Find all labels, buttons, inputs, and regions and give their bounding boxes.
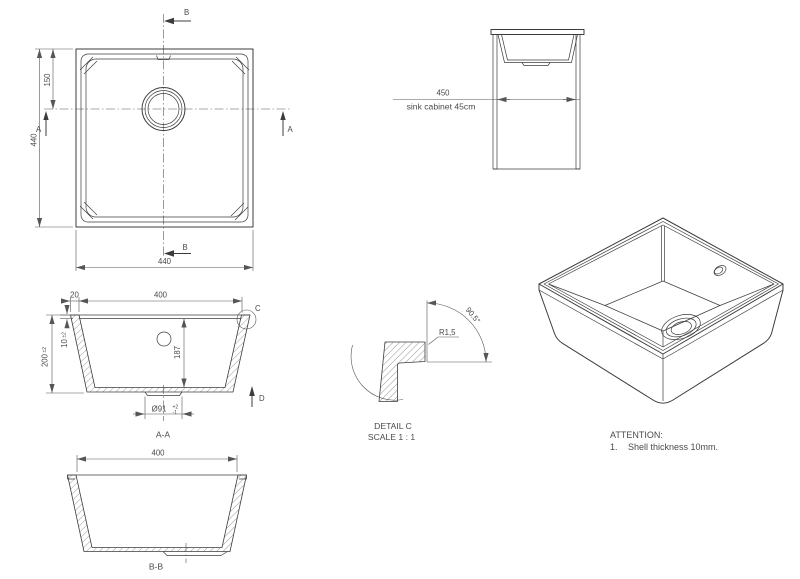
plan-dim-drain-offset-text: 150	[43, 73, 52, 87]
plan-view: 440 150 440 B B A	[30, 8, 294, 271]
plan-rim-inner-edge	[81, 54, 248, 222]
section-aa-overflow-hole	[157, 332, 171, 346]
section-aa-dim-thickness-text: 10±2	[60, 332, 69, 348]
section-bb-shell	[68, 475, 247, 552]
section-bb-rim-ears	[68, 475, 247, 479]
plan-dim-drain-offset: 150	[43, 49, 53, 109]
detail-c-marker-label: C	[255, 304, 261, 313]
detail-c-wall-section	[379, 342, 425, 402]
cabinet-countertop	[491, 30, 584, 35]
section-aa-title: A-A	[156, 430, 171, 440]
iso-rim-outer	[539, 218, 783, 354]
section-marker-b-top-label: B	[184, 8, 189, 17]
section-bb-drain-recess	[163, 552, 228, 556]
section-aa-view: 20 400 200±2 10±2 187	[41, 291, 266, 440]
cabinet-side-view: 450 sink cabinet 45cm	[393, 30, 584, 170]
plan-dim-overall-width: 440	[76, 230, 253, 271]
section-bb-dim-inner-width: 400	[77, 449, 237, 473]
section-aa-dim-drain-tol-lower: -1	[173, 410, 178, 416]
section-aa-dim-inner-width: 400	[79, 291, 242, 313]
attention-note: ATTENTION: 1. Shell thickness 10mm.	[610, 430, 718, 452]
cabinet-dim-width-text: 450	[436, 89, 450, 98]
section-aa-shell	[71, 315, 251, 392]
section-aa-dim-drain-text: Ø91	[152, 405, 167, 414]
detail-c-scale: SCALE 1 : 1	[368, 432, 416, 442]
section-marker-b-top: B	[164, 8, 191, 24]
section-aa-dim-rim: 20	[61, 291, 79, 313]
section-marker-b-bottom: B	[164, 243, 191, 257]
view-arrow-d: D	[249, 386, 265, 407]
section-aa-dim-thickness: 10±2	[60, 307, 73, 348]
section-arrow-icon	[164, 250, 174, 257]
cabinet-note-text: sink cabinet 45cm	[407, 102, 476, 112]
section-bb-dim-inner-width-text: 400	[151, 449, 165, 458]
attention-item-text: Shell thickness 10mm.	[628, 442, 718, 452]
section-bb-view: 400 B-B	[68, 449, 247, 572]
iso-bowl-wall-edges	[549, 284, 775, 347]
detail-c-angle-text: 90.5°	[464, 305, 483, 325]
detail-c-title: DETAIL C	[374, 421, 412, 431]
section-aa-dim-depth: 187	[173, 319, 184, 388]
section-aa-dim-drain: Ø91 +2 -1	[133, 397, 194, 420]
section-marker-a-left: A	[36, 111, 49, 136]
cabinet-dim-width: 450 sink cabinet 45cm	[393, 89, 580, 112]
section-marker-a-right: A	[280, 111, 293, 136]
section-aa-dim-inner-width-text: 400	[154, 291, 168, 300]
plan-outer-edge	[76, 49, 253, 227]
section-aa-dim-depth-text: 187	[173, 346, 182, 359]
detail-c-radius-callout: R1,5	[429, 328, 460, 345]
section-arrow-icon	[249, 386, 255, 396]
section-aa-dim-height-text: 200±2	[41, 347, 50, 367]
attention-item-number: 1.	[610, 442, 618, 452]
technical-drawing-canvas: 440 150 440 B B A	[0, 0, 800, 579]
section-arrow-icon	[164, 18, 174, 25]
detail-c-radius-text: R1,5	[439, 328, 456, 337]
detail-c-view: 90.5° R1,5 DETAIL C SCALE 1 : 1	[351, 301, 492, 443]
plan-corner-chamfers	[80, 57, 249, 220]
detail-c-angle-arc	[427, 303, 486, 362]
plan-bowl-edge	[86, 59, 243, 217]
section-bb-title: B-B	[149, 562, 164, 572]
attention-heading: ATTENTION:	[610, 430, 663, 440]
section-marker-a-right-label: A	[288, 125, 294, 134]
section-arrow-icon	[43, 111, 48, 120]
iso-bowl-floor	[605, 281, 720, 331]
iso-rim-lip-edges	[539, 290, 783, 401]
iso-far-corner-edge	[662, 226, 665, 281]
section-marker-b-bottom-label: B	[183, 243, 188, 252]
section-aa-dim-rim-text: 20	[70, 291, 79, 300]
plan-dim-overall-width-text: 440	[158, 257, 172, 266]
iso-drain	[658, 310, 703, 344]
iso-overflow-hole	[712, 263, 728, 277]
plan-dim-overall-height-text: 440	[30, 133, 39, 147]
cabinet-sink-bowl	[498, 35, 578, 66]
section-marker-a-left-label: A	[36, 125, 42, 134]
view-arrow-d-label: D	[259, 394, 265, 403]
technical-drawing-page: 440 150 440 B B A	[0, 0, 800, 579]
isometric-view	[539, 218, 783, 403]
section-arrow-icon	[280, 111, 285, 120]
detail-c-angle-reference-lines	[427, 301, 492, 363]
